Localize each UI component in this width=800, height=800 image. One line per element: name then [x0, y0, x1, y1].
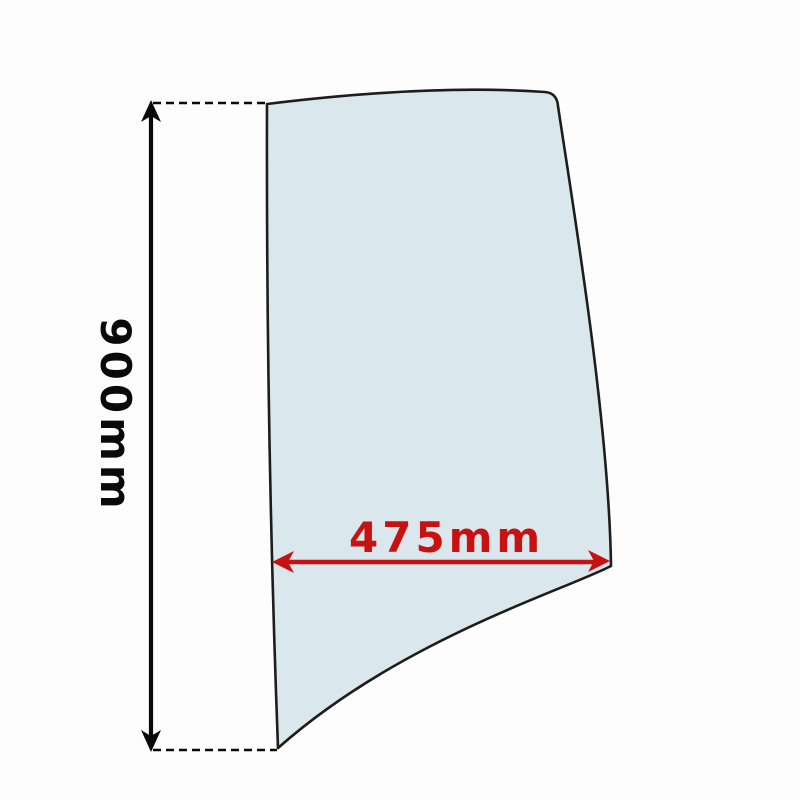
height-dimension-label: 900mm	[90, 320, 140, 510]
glass-panel-shape	[267, 90, 611, 748]
height-dimension-arrow	[141, 100, 161, 752]
width-dimension-label: 475mm	[349, 514, 544, 562]
diagram-stage: 900mm 475mm	[0, 0, 800, 800]
